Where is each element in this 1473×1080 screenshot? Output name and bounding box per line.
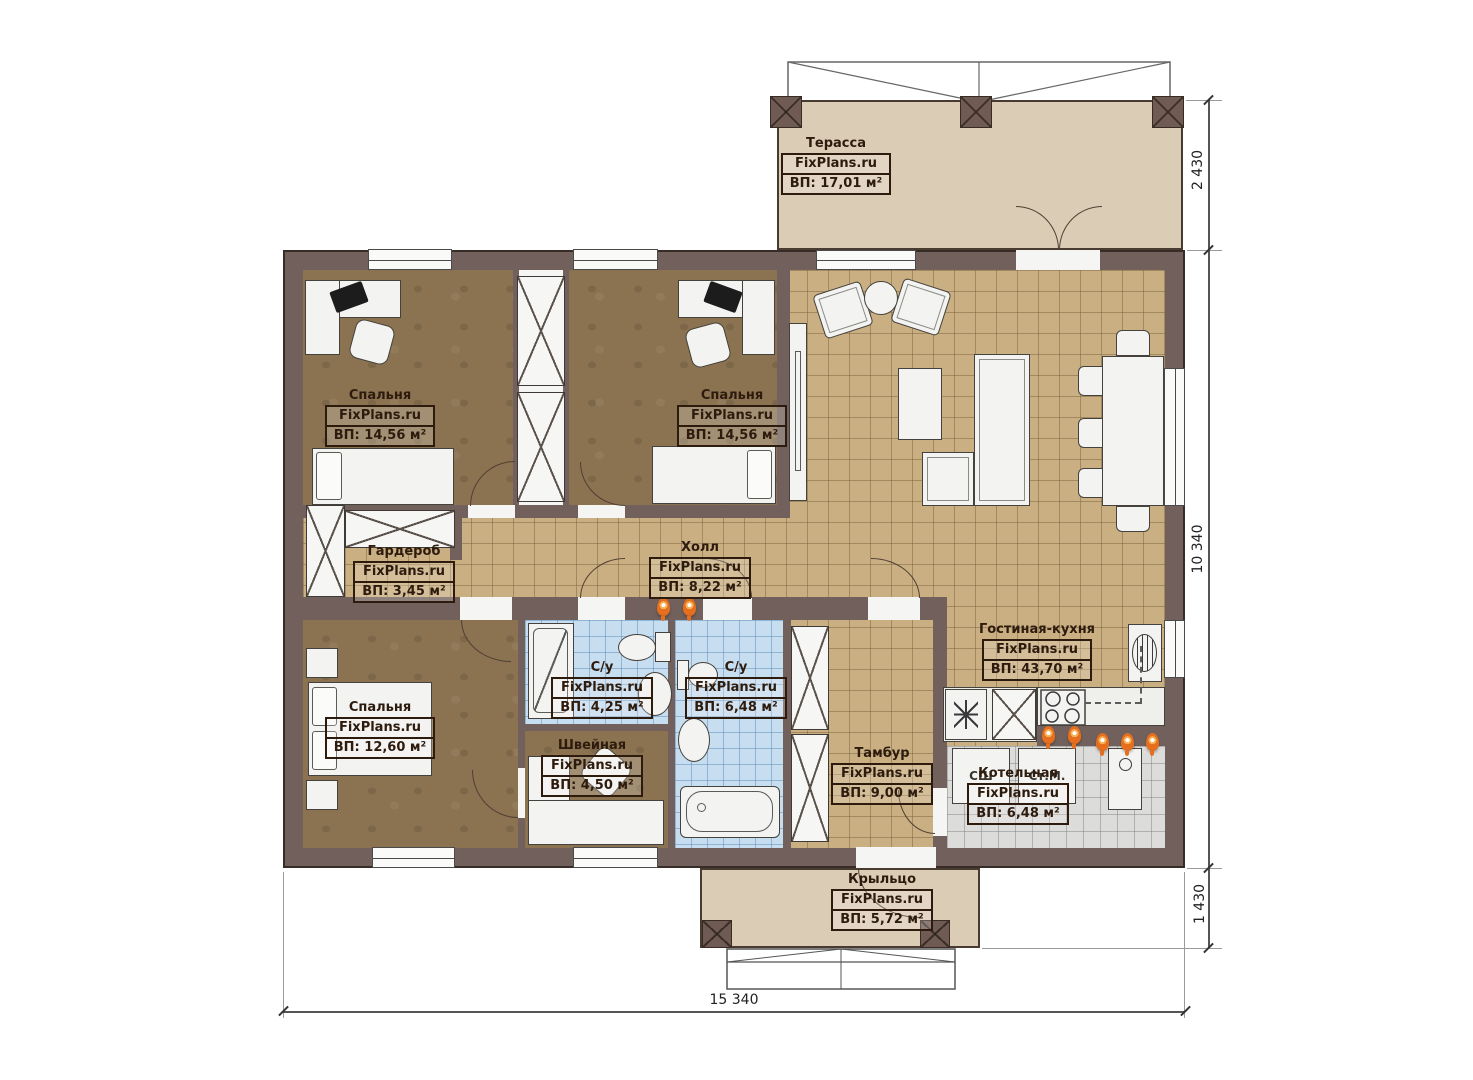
room-label-bathroom-large: С/у FixPlans.ru ВП: 6,48 м² bbox=[692, 660, 780, 719]
room-name: Гостиная-кухня bbox=[979, 622, 1095, 637]
dimension-house-depth: 10 340 bbox=[1190, 514, 1206, 584]
room-label-terrace: Терасса FixPlans.ru ВП: 17,01 м² bbox=[780, 136, 892, 195]
room-label-bedroom-bottom-left: Спальня FixPlans.ru ВП: 12,60 м² bbox=[326, 700, 434, 759]
room-label-box: FixPlans.ru ВП: 5,72 м² bbox=[831, 889, 932, 931]
room-name: Гардероб bbox=[368, 544, 441, 559]
door-opening bbox=[518, 768, 525, 818]
door-opening bbox=[703, 597, 752, 620]
watermark: FixPlans.ru bbox=[687, 679, 784, 699]
room-label-box: FixPlans.ru ВП: 8,22 м² bbox=[649, 557, 750, 599]
room-area: ВП: 5,72 м² bbox=[833, 911, 930, 929]
floor-plan-canvas: СШ Ст.М. Терасса FixPlans.ru ВП: 17,01 м… bbox=[0, 0, 1473, 1080]
fridge bbox=[945, 689, 987, 740]
room-label-bedroom-top-left: Спальня FixPlans.ru ВП: 14,56 м² bbox=[326, 388, 434, 447]
watermark: FixPlans.ru bbox=[984, 641, 1090, 661]
terrace-post bbox=[770, 96, 802, 128]
room-name: Котельная bbox=[978, 766, 1058, 781]
watermark: FixPlans.ru bbox=[969, 785, 1066, 805]
window bbox=[1164, 368, 1185, 506]
room-label-bathroom-small: С/у FixPlans.ru ВП: 4,25 м² bbox=[556, 660, 648, 719]
room-label-box: FixPlans.ru ВП: 17,01 м² bbox=[781, 153, 891, 195]
room-label-box: FixPlans.ru ВП: 6,48 м² bbox=[685, 677, 786, 719]
watermark: FixPlans.ru bbox=[783, 155, 889, 175]
watermark: FixPlans.ru bbox=[327, 719, 433, 739]
room-label-box: FixPlans.ru ВП: 14,56 м² bbox=[325, 405, 435, 447]
room-label-porch: Крыльцо FixPlans.ru ВП: 5,72 м² bbox=[826, 872, 938, 931]
window bbox=[573, 249, 658, 270]
porch-post bbox=[702, 920, 732, 948]
window bbox=[368, 249, 452, 270]
toilet-bowl bbox=[618, 634, 656, 661]
radiator-icon bbox=[1146, 733, 1159, 751]
sink bbox=[678, 718, 710, 762]
wardrobe-cabinet bbox=[791, 626, 829, 730]
coffee-table bbox=[898, 368, 942, 440]
door-opening bbox=[468, 505, 515, 518]
partition-bath-vestibule bbox=[783, 620, 791, 848]
extension-line bbox=[1184, 872, 1185, 1018]
room-area: ВП: 6,48 м² bbox=[969, 805, 1066, 823]
bed bbox=[652, 446, 776, 504]
room-name: Спальня bbox=[349, 388, 411, 403]
dining-chair bbox=[1116, 330, 1150, 356]
door-opening bbox=[933, 788, 947, 836]
boiler-dial bbox=[1119, 758, 1132, 771]
window bbox=[1164, 620, 1185, 678]
dimension-line-horizontal bbox=[283, 1011, 1185, 1013]
room-name: Швейная bbox=[558, 738, 626, 753]
room-label-box: FixPlans.ru ВП: 43,70 м² bbox=[982, 639, 1092, 681]
nightstand bbox=[306, 648, 338, 678]
sofa bbox=[922, 452, 974, 506]
door-opening bbox=[868, 597, 920, 620]
kitchen-cabinet bbox=[992, 689, 1036, 740]
room-area: ВП: 4,25 м² bbox=[553, 699, 650, 717]
room-label-wardrobe: Гардероб FixPlans.ru ВП: 3,45 м² bbox=[348, 544, 460, 603]
watermark: FixPlans.ru bbox=[543, 757, 640, 777]
room-label-box: FixPlans.ru ВП: 3,45 м² bbox=[353, 561, 454, 603]
extension-line bbox=[982, 948, 1222, 949]
terrace-post bbox=[1152, 96, 1184, 128]
room-label-boiler: Котельная FixPlans.ru ВП: 6,48 м² bbox=[962, 766, 1074, 825]
dimension-porch-depth: 1 430 bbox=[1192, 874, 1208, 934]
watermark: FixPlans.ru bbox=[651, 559, 748, 579]
sofa bbox=[974, 354, 1030, 506]
desk bbox=[742, 280, 775, 355]
room-area: ВП: 14,56 м² bbox=[327, 427, 433, 445]
room-label-box: FixPlans.ru ВП: 6,48 м² bbox=[967, 783, 1068, 825]
door-opening bbox=[460, 597, 512, 620]
wardrobe-cabinet bbox=[306, 505, 345, 597]
radiator-icon bbox=[1096, 733, 1109, 751]
entrance-opening bbox=[856, 847, 936, 868]
dining-chair bbox=[1116, 506, 1150, 532]
nightstand bbox=[306, 780, 338, 810]
tv-stand bbox=[789, 323, 807, 501]
dining-table bbox=[1102, 356, 1164, 506]
sewing-desk bbox=[528, 800, 664, 845]
bed bbox=[312, 448, 454, 505]
wardrobe-cabinet bbox=[791, 734, 829, 842]
room-name: Спальня bbox=[701, 388, 763, 403]
dining-chair bbox=[1078, 468, 1104, 498]
watermark: FixPlans.ru bbox=[355, 563, 452, 583]
extension-line bbox=[283, 872, 284, 1018]
bathtub-drain bbox=[697, 803, 706, 812]
room-name: С/у bbox=[591, 660, 614, 675]
bathtub bbox=[680, 786, 780, 838]
room-label-box: FixPlans.ru ВП: 9,00 м² bbox=[831, 763, 932, 805]
room-label-hall: Холл FixPlans.ru ВП: 8,22 м² bbox=[650, 540, 750, 599]
radiator-icon bbox=[1042, 726, 1055, 744]
room-area: ВП: 9,00 м² bbox=[833, 785, 930, 803]
window bbox=[573, 847, 658, 868]
room-label-box: FixPlans.ru ВП: 4,25 м² bbox=[551, 677, 652, 719]
boiler-unit bbox=[1108, 748, 1142, 810]
window bbox=[816, 250, 916, 270]
wardrobe-cabinet bbox=[517, 392, 565, 502]
door-opening bbox=[578, 505, 625, 518]
room-area: ВП: 43,70 м² bbox=[984, 661, 1090, 679]
room-name: Тамбур bbox=[854, 746, 909, 761]
radiator-icon bbox=[657, 598, 670, 616]
room-label-living-kitchen: Гостиная-кухня FixPlans.ru ВП: 43,70 м² bbox=[962, 622, 1112, 681]
dimension-house-width: 15 340 bbox=[654, 992, 814, 1008]
counter-dashed-line bbox=[1140, 646, 1142, 704]
room-name: С/у bbox=[725, 660, 748, 675]
window bbox=[372, 847, 455, 868]
room-label-vestibule: Тамбур FixPlans.ru ВП: 9,00 м² bbox=[830, 746, 934, 805]
room-label-box: FixPlans.ru ВП: 4,50 м² bbox=[541, 755, 642, 797]
radiator-icon bbox=[1121, 733, 1134, 751]
partition-bath-sewing bbox=[525, 724, 668, 731]
tv bbox=[795, 351, 801, 471]
room-label-sewing: Швейная FixPlans.ru ВП: 4,50 м² bbox=[542, 738, 642, 797]
dining-chair bbox=[1078, 418, 1104, 448]
watermark: FixPlans.ru bbox=[833, 891, 930, 911]
sink-basin bbox=[1132, 634, 1157, 672]
porch-steps bbox=[726, 948, 956, 992]
terrace-door-opening bbox=[1016, 250, 1100, 270]
room-label-box: FixPlans.ru ВП: 12,60 м² bbox=[325, 717, 435, 759]
room-area: ВП: 4,50 м² bbox=[543, 777, 640, 795]
terrace-post bbox=[960, 96, 992, 128]
room-label-bedroom-top-middle: Спальня FixPlans.ru ВП: 14,56 м² bbox=[678, 388, 786, 447]
watermark: FixPlans.ru bbox=[553, 679, 650, 699]
counter-dashed-line bbox=[1085, 702, 1141, 704]
radiator-icon bbox=[683, 598, 696, 616]
room-name: Холл bbox=[681, 540, 719, 555]
room-area: ВП: 3,45 м² bbox=[355, 583, 452, 601]
room-name: Крыльцо bbox=[848, 872, 916, 887]
room-label-box: FixPlans.ru ВП: 14,56 м² bbox=[677, 405, 787, 447]
watermark: FixPlans.ru bbox=[679, 407, 785, 427]
room-name: Терасса bbox=[806, 136, 866, 151]
dimension-line-vertical bbox=[1208, 100, 1210, 948]
room-area: ВП: 6,48 м² bbox=[687, 699, 784, 717]
room-area: ВП: 8,22 м² bbox=[651, 579, 748, 597]
pillow bbox=[316, 452, 342, 500]
room-area: ВП: 12,60 м² bbox=[327, 739, 433, 757]
watermark: FixPlans.ru bbox=[833, 765, 930, 785]
pillow bbox=[747, 450, 772, 499]
radiator-icon bbox=[1068, 726, 1081, 744]
room-area: ВП: 17,01 м² bbox=[783, 175, 889, 193]
door-opening bbox=[578, 597, 625, 620]
dimension-terrace-depth: 2 430 bbox=[1190, 140, 1206, 200]
extension-line bbox=[1186, 100, 1222, 101]
wardrobe-cabinet bbox=[345, 510, 455, 548]
dining-chair bbox=[1078, 366, 1104, 396]
side-table bbox=[864, 281, 898, 315]
wardrobe-cabinet bbox=[517, 276, 565, 386]
room-area: ВП: 14,56 м² bbox=[679, 427, 785, 445]
watermark: FixPlans.ru bbox=[327, 407, 433, 427]
toilet-tank bbox=[655, 632, 671, 662]
kitchen-sink bbox=[1128, 624, 1162, 682]
stove bbox=[1040, 689, 1086, 726]
room-name: Спальня bbox=[349, 700, 411, 715]
